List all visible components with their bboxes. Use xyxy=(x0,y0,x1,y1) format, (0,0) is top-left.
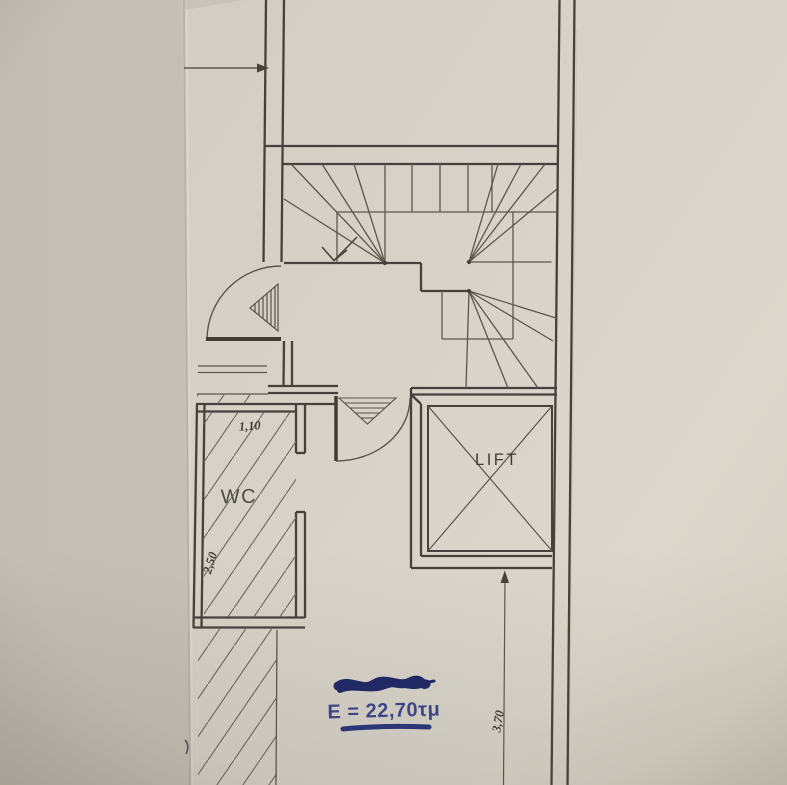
area-underline xyxy=(343,726,429,729)
dim-label-1-10: 1,10 xyxy=(238,418,262,434)
lift-label: LIFT xyxy=(475,451,519,469)
area-label: E = 22,70τμ xyxy=(327,699,440,724)
floorplan-photo: WC LIFT 1,10 2,50 3,70 E = 22,70τμ xyxy=(0,0,787,785)
wc-label: WC xyxy=(221,486,258,509)
